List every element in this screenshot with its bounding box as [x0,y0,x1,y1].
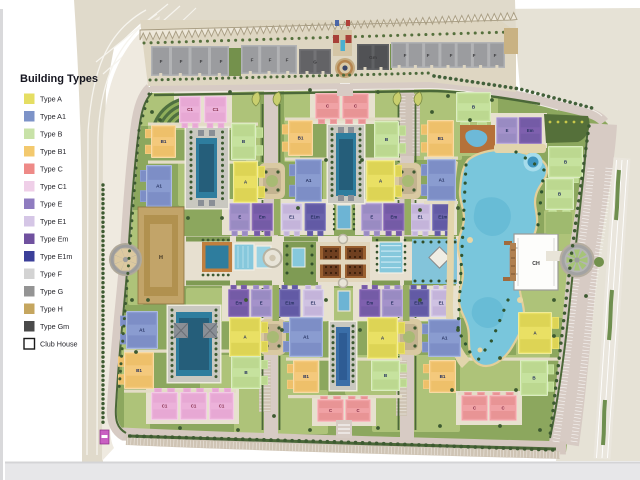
svg-text:A1: A1 [439,178,445,183]
svg-text:E: E [260,301,263,306]
svg-text:C: C [356,408,359,413]
svg-text:F: F [450,53,453,58]
svg-text:C: C [501,406,504,411]
svg-text:H: H [159,255,163,261]
svg-text:F: F [251,58,254,63]
svg-text:F: F [404,53,407,58]
svg-text:C1: C1 [191,404,197,409]
svg-text:E1m: E1m [311,215,320,220]
svg-text:E1: E1 [439,301,445,306]
svg-text:E1m: E1m [285,301,294,306]
svg-text:F: F [286,58,289,63]
svg-text:E: E [370,215,373,220]
svg-text:Type F: Type F [40,270,63,279]
svg-text:F: F [269,58,272,63]
svg-text:Type Em: Type Em [40,235,68,244]
svg-text:Type E: Type E [40,200,63,209]
svg-text:F: F [180,59,183,64]
svg-text:C1: C1 [187,107,193,112]
svg-text:Type C1: Type C1 [40,182,67,191]
svg-text:G: G [313,60,317,65]
svg-text:B1: B1 [136,368,142,373]
svg-text:A1: A1 [139,328,145,333]
svg-text:Em: Em [366,301,373,306]
svg-text:Em: Em [527,128,534,133]
svg-text:E: E [391,301,394,306]
svg-text:Club House: Club House [40,340,78,349]
svg-text:C1: C1 [219,404,225,409]
svg-text:C: C [473,406,476,411]
svg-text:F: F [200,59,203,64]
svg-text:E1: E1 [418,215,424,220]
svg-text:E: E [238,215,241,220]
svg-text:F: F [220,59,223,64]
svg-text:Type Gm: Type Gm [40,322,69,331]
svg-text:F: F [494,53,497,58]
svg-text:F: F [473,53,476,58]
svg-text:B1: B1 [440,374,446,379]
svg-text:C1: C1 [162,404,168,409]
svg-text:Type E1m: Type E1m [40,252,72,261]
svg-text:A1: A1 [306,178,312,183]
svg-text:Type A1: Type A1 [40,112,66,121]
svg-text:B1: B1 [298,136,304,141]
svg-text:B1: B1 [438,136,444,141]
svg-text:Em: Em [259,215,266,220]
svg-text:B1: B1 [303,374,309,379]
svg-text:A1: A1 [156,184,162,189]
svg-text:Type E1: Type E1 [40,217,66,226]
svg-text:Type B: Type B [40,130,63,139]
svg-text:E1m: E1m [438,215,447,220]
svg-text:Type C: Type C [40,165,63,174]
svg-text:Type G: Type G [40,287,64,296]
svg-text:Building Types: Building Types [20,73,98,85]
svg-text:C1: C1 [213,107,219,112]
svg-text:Type A: Type A [40,95,62,104]
svg-text:CH: CH [532,261,540,267]
svg-text:B1: B1 [161,139,167,144]
svg-text:E1: E1 [311,301,317,306]
svg-text:A1: A1 [303,335,309,340]
svg-text:F: F [160,59,163,64]
svg-text:E1: E1 [289,215,295,220]
svg-text:E: E [506,128,509,133]
svg-text:F: F [427,53,430,58]
svg-text:Em: Em [390,215,397,220]
svg-text:Em: Em [235,301,242,306]
svg-text:Type B1: Type B1 [40,147,66,156]
svg-text:Type H: Type H [40,305,63,314]
svg-text:A1: A1 [442,336,448,341]
svg-text:Gm: Gm [369,55,377,60]
svg-text:C: C [329,408,332,413]
